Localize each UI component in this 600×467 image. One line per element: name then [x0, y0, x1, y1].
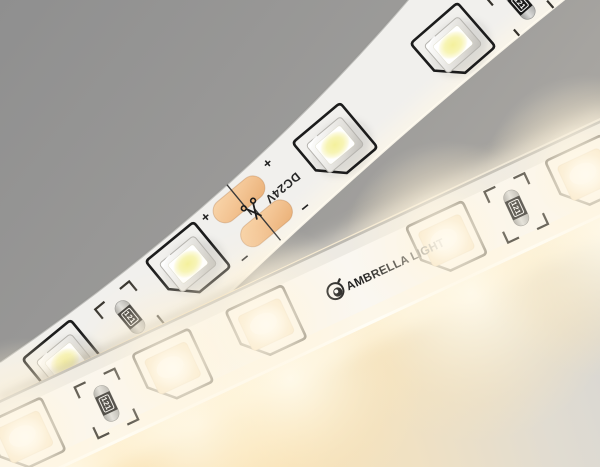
scene-svg: 121 + [0, 0, 600, 467]
led-strip-product-photo: 121 + [0, 0, 600, 467]
